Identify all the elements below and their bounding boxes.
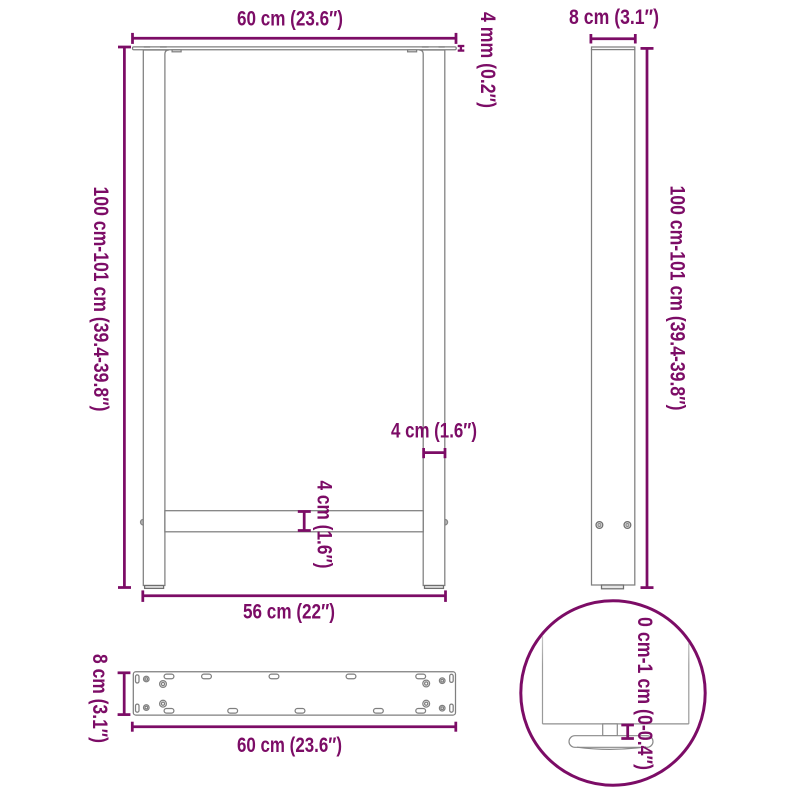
svg-text:8 cm (3.1″): 8 cm (3.1″) <box>88 654 111 743</box>
svg-text:4 mm (0.2″): 4 mm (0.2″) <box>476 12 499 108</box>
svg-text:60 cm (23.6″): 60 cm (23.6″) <box>237 734 342 757</box>
svg-text:100 cm-101 cm (39.4-39.8″): 100 cm-101 cm (39.4-39.8″) <box>89 187 112 412</box>
svg-text:0 cm-1 cm (0-0.4″): 0 cm-1 cm (0-0.4″) <box>633 617 656 770</box>
svg-text:4 cm (1.6″): 4 cm (1.6″) <box>312 481 335 569</box>
svg-text:100 cm-101 cm (39.4-39.8″): 100 cm-101 cm (39.4-39.8″) <box>666 186 689 411</box>
svg-text:60 cm (23.6″): 60 cm (23.6″) <box>237 7 343 30</box>
svg-text:8 cm (3.1″): 8 cm (3.1″) <box>569 6 659 29</box>
svg-text:56 cm (22″): 56 cm (22″) <box>243 601 335 624</box>
svg-text:4 cm (1.6″): 4 cm (1.6″) <box>391 420 477 443</box>
